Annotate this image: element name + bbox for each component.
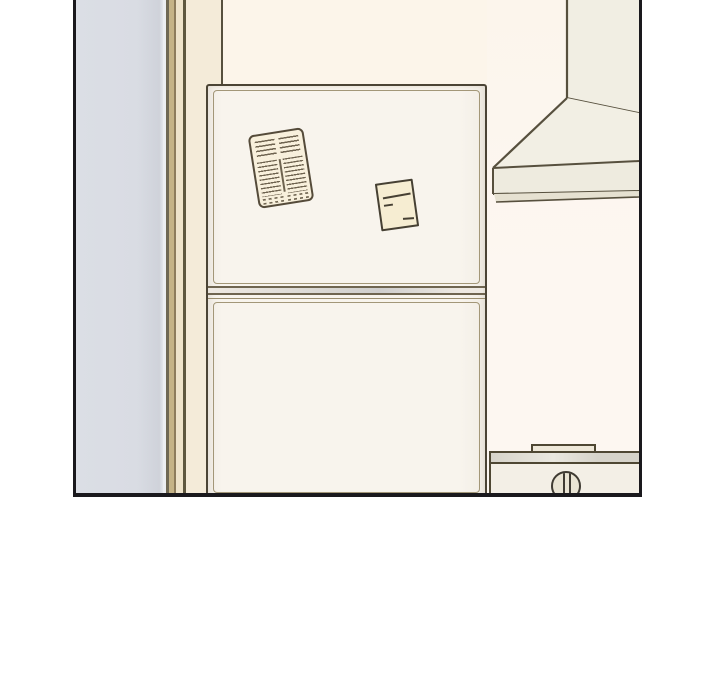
knob-bar bbox=[563, 473, 565, 497]
knob-bar bbox=[569, 473, 571, 497]
note-line bbox=[403, 217, 414, 219]
sticky-note-magnet bbox=[375, 179, 419, 232]
menu-flyer-magnet bbox=[248, 127, 315, 209]
flyer-header-column bbox=[278, 135, 300, 155]
fridge-lower-door-inset bbox=[213, 302, 480, 493]
flyer-header-lines bbox=[255, 135, 301, 159]
flyer-text-column bbox=[257, 160, 282, 198]
comic-panel bbox=[73, 0, 642, 497]
washing-machine-lid-band bbox=[489, 451, 639, 464]
fridge-door-seam bbox=[208, 298, 485, 299]
fridge-door-seam bbox=[208, 293, 485, 295]
flyer-dash-group bbox=[263, 196, 285, 205]
flyer-body-lines bbox=[257, 156, 308, 198]
refrigerator bbox=[206, 84, 487, 497]
washing-machine-knob bbox=[551, 471, 581, 497]
flyer-header-column bbox=[255, 139, 277, 159]
fridge-upper-door-inset bbox=[213, 90, 480, 284]
note-line bbox=[384, 204, 393, 207]
note-line bbox=[383, 193, 411, 199]
page bbox=[0, 0, 720, 700]
hood-chimney-duct bbox=[567, 0, 639, 113]
hood-sloped-canopy bbox=[493, 98, 639, 168]
washing-machine bbox=[487, 444, 639, 493]
flyer-dash-group bbox=[287, 192, 309, 201]
flyer-text-column bbox=[283, 156, 308, 194]
